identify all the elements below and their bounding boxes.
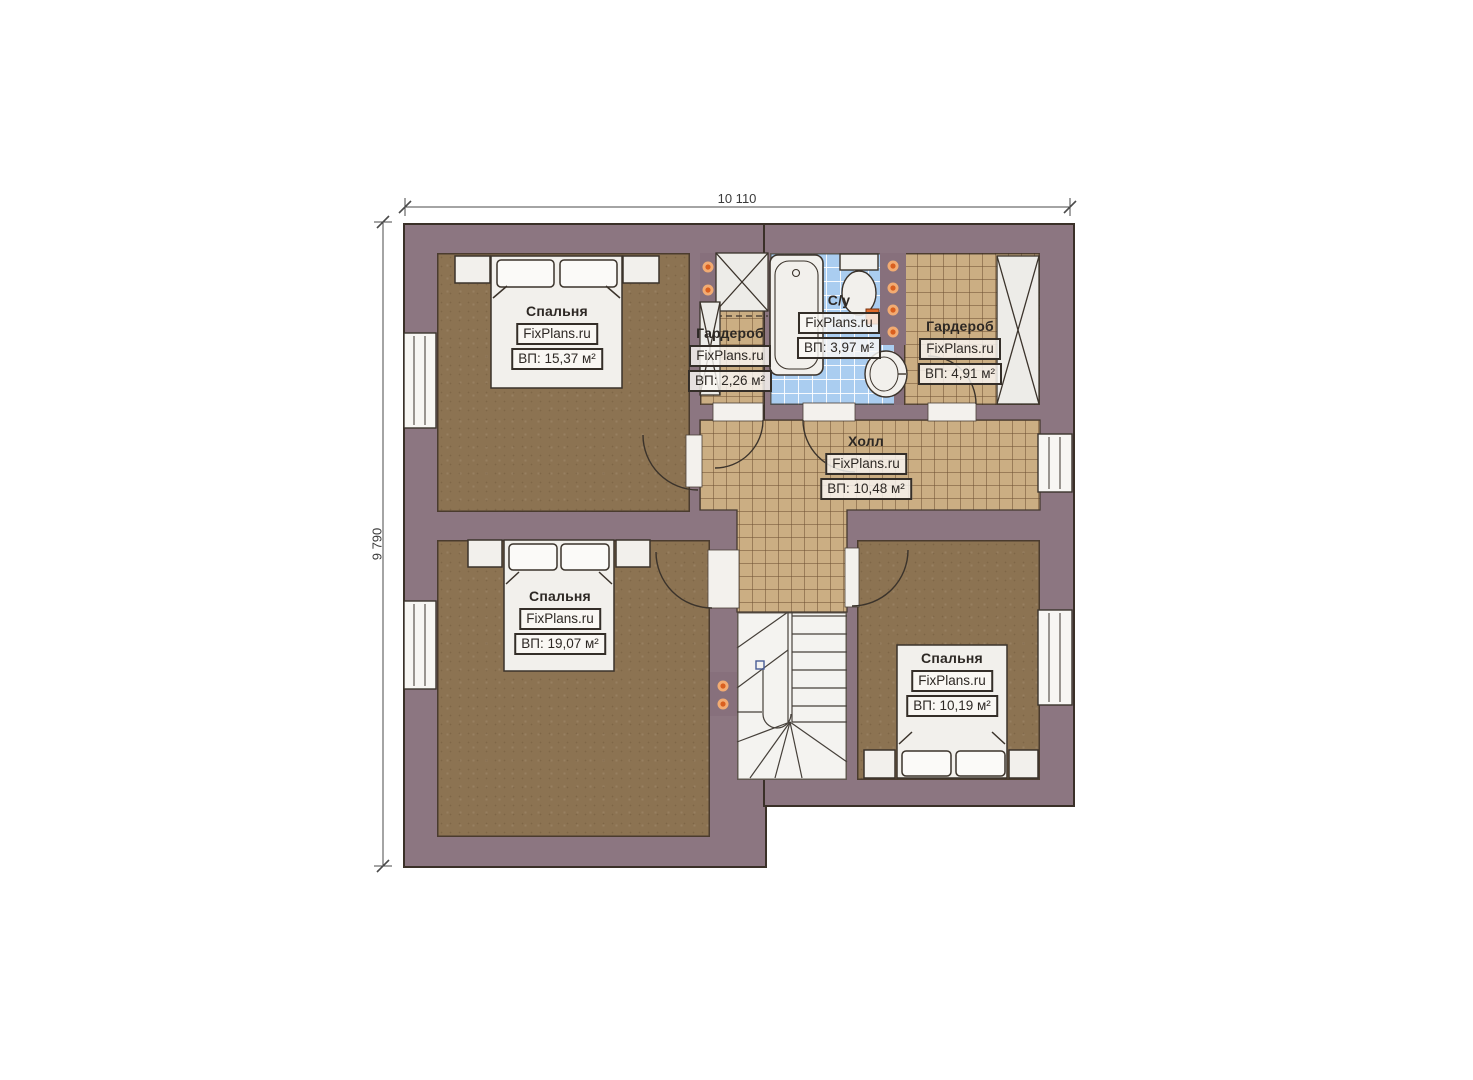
wall-stub-bathroom: [880, 253, 906, 345]
dimension-width-label: 10 110: [718, 191, 757, 206]
floor-wardrobe-right: [904, 253, 1040, 405]
floor-bedroom-bottom-left: [437, 540, 710, 837]
floor-bedroom-bottom-right: [857, 540, 1040, 780]
wall-stub-bathroom-low: [894, 345, 904, 405]
floor-bathroom: [770, 253, 896, 405]
floor-stairwell: [737, 612, 847, 780]
wall-stub-stairs: [710, 672, 737, 716]
wall-stub-wardrobe-left: [700, 253, 716, 305]
dimension-height-label: 9 790: [370, 528, 385, 561]
floor-bedroom-top-left: [437, 253, 690, 512]
floor-plan-canvas: 10 110 9 790 Спальня FixPlans.ru ВП: 15,…: [0, 0, 1473, 1080]
